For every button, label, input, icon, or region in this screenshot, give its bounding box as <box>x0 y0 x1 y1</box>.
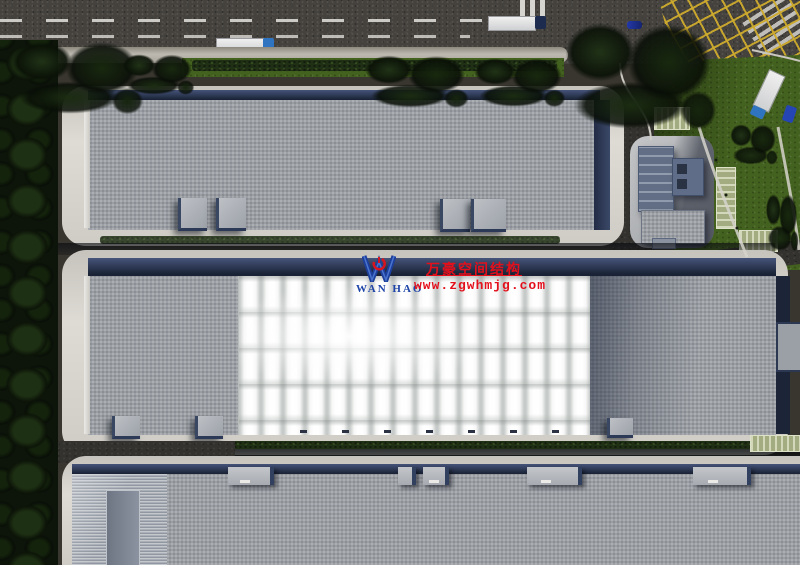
watermark: WAN HAO 万豪空间结构 www.zgwhmjg.com <box>350 252 600 304</box>
tree-cluster-east-2 <box>763 188 800 256</box>
watermark-website: www.zgwhmjg.com <box>414 278 546 293</box>
watermark-company-name: 万豪空间结构 <box>426 259 522 279</box>
tree-cluster-north-2 <box>356 50 474 112</box>
tree-cluster-northeast <box>552 12 724 138</box>
aerial-site-render: WAN HAO 万豪空间结构 www.zgwhmjg.com <box>0 0 800 565</box>
tree-cluster-east-1 <box>726 120 780 168</box>
wanhao-logo-icon <box>362 254 396 282</box>
tree-cluster-north-1 <box>116 50 198 98</box>
